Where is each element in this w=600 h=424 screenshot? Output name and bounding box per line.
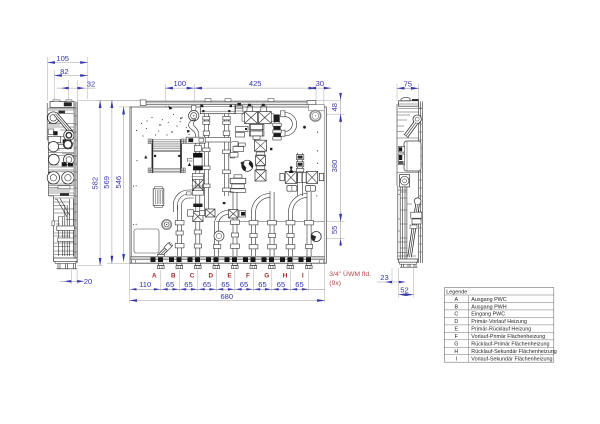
svg-text:C: C — [454, 312, 458, 318]
svg-text:23: 23 — [380, 273, 388, 282]
svg-text:48: 48 — [330, 103, 339, 111]
svg-text:3/4" ÜWM fld.: 3/4" ÜWM fld. — [329, 270, 371, 278]
svg-text:546: 546 — [114, 176, 123, 189]
svg-text:Vorlauf-Sekundär Flächenheizun: Vorlauf-Sekundär Flächenheizung — [471, 357, 552, 363]
svg-text:G: G — [264, 273, 269, 280]
svg-text:100: 100 — [173, 79, 186, 88]
svg-text:Legende: Legende — [446, 289, 467, 295]
svg-text:I: I — [302, 273, 304, 280]
svg-text:B: B — [171, 273, 176, 280]
svg-text:Vorlauf-Primär Flächenheizung: Vorlauf-Primär Flächenheizung — [471, 334, 545, 340]
svg-text:A: A — [152, 273, 157, 280]
svg-text:75: 75 — [404, 79, 412, 88]
svg-text:20: 20 — [84, 277, 92, 286]
svg-text:Primär-Vorlauf Heizung: Primär-Vorlauf Heizung — [471, 319, 527, 325]
svg-text:C: C — [190, 273, 195, 280]
svg-text:B: B — [454, 304, 458, 310]
svg-text:110: 110 — [139, 280, 151, 289]
svg-text:Rücklauf-Sekundär Flächenheizu: Rücklauf-Sekundär Flächenheizung — [471, 349, 556, 355]
svg-text:65: 65 — [277, 280, 285, 289]
svg-text:D: D — [454, 319, 458, 325]
svg-text:H: H — [283, 273, 288, 280]
svg-text:(9x): (9x) — [329, 280, 341, 287]
svg-text:425: 425 — [249, 79, 262, 88]
svg-text:Rücklauf-Primär Flächenheizung: Rücklauf-Primär Flächenheizung — [471, 342, 549, 348]
svg-text:Primär-Rücklauf Heizung: Primär-Rücklauf Heizung — [471, 327, 531, 333]
svg-text:A: A — [454, 297, 458, 303]
svg-text:I: I — [456, 357, 458, 363]
svg-text:55: 55 — [330, 226, 339, 234]
svg-text:65: 65 — [258, 280, 266, 289]
svg-text:680: 680 — [220, 292, 233, 301]
svg-text:F: F — [246, 273, 250, 280]
svg-text:32: 32 — [87, 79, 95, 88]
svg-text:65: 65 — [184, 280, 192, 289]
svg-text:H: H — [454, 349, 458, 355]
svg-text:569: 569 — [102, 176, 111, 189]
svg-text:65: 65 — [203, 280, 211, 289]
svg-text:E: E — [227, 273, 232, 280]
svg-text:52: 52 — [400, 285, 408, 294]
svg-text:D: D — [208, 273, 213, 280]
svg-text:G: G — [454, 342, 458, 348]
svg-text:Ausgang PWH: Ausgang PWH — [471, 304, 506, 310]
svg-text:82: 82 — [60, 67, 68, 76]
svg-text:582: 582 — [90, 177, 99, 190]
svg-text:65: 65 — [221, 280, 229, 289]
svg-text:Eingang PWC: Eingang PWC — [471, 312, 505, 318]
svg-text:65: 65 — [166, 280, 174, 289]
svg-text:65: 65 — [240, 280, 248, 289]
svg-text:65: 65 — [295, 280, 303, 289]
svg-text:105: 105 — [56, 54, 69, 63]
svg-text:E: E — [454, 327, 458, 333]
svg-text:30: 30 — [316, 79, 324, 88]
svg-text:380: 380 — [330, 160, 339, 173]
svg-text:Ausgang PWC: Ausgang PWC — [471, 297, 506, 303]
